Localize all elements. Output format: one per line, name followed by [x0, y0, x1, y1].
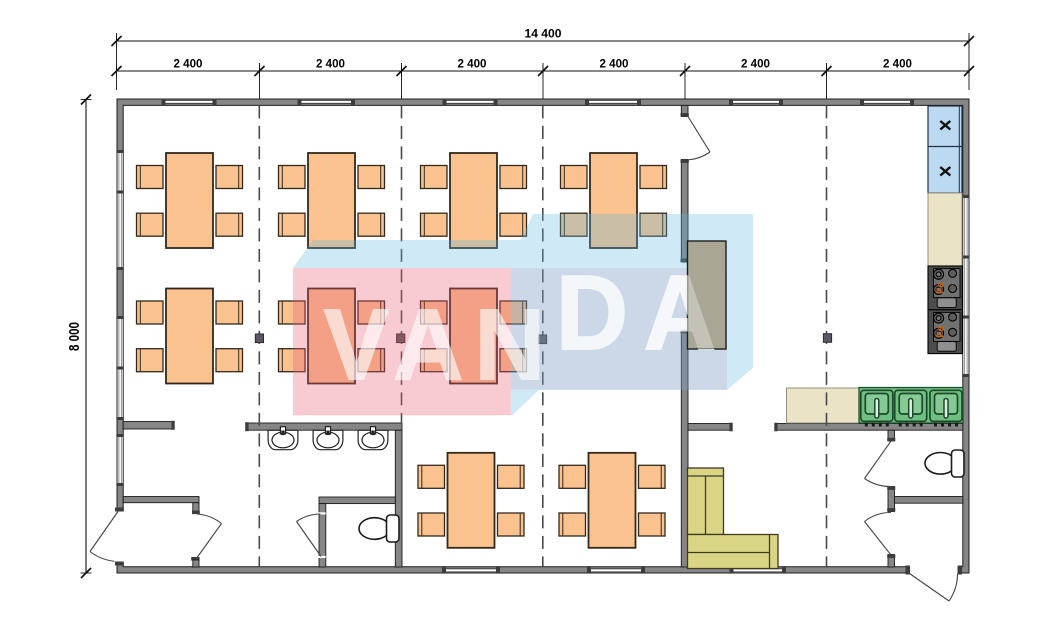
svg-text:Fe: Fe: [936, 326, 947, 338]
svg-text:2 400: 2 400: [741, 59, 770, 71]
svg-text:Fe: Fe: [936, 282, 947, 294]
svg-text:14 400: 14 400: [525, 29, 562, 41]
svg-text:VAN: VAN: [324, 289, 557, 401]
svg-text:2 400: 2 400: [316, 59, 345, 71]
svg-text:2 400: 2 400: [174, 59, 203, 71]
svg-text:2 400: 2 400: [883, 59, 912, 71]
svg-text:2 400: 2 400: [600, 59, 629, 71]
svg-text:2 400: 2 400: [458, 59, 487, 71]
svg-text:8 000: 8 000: [67, 322, 83, 351]
